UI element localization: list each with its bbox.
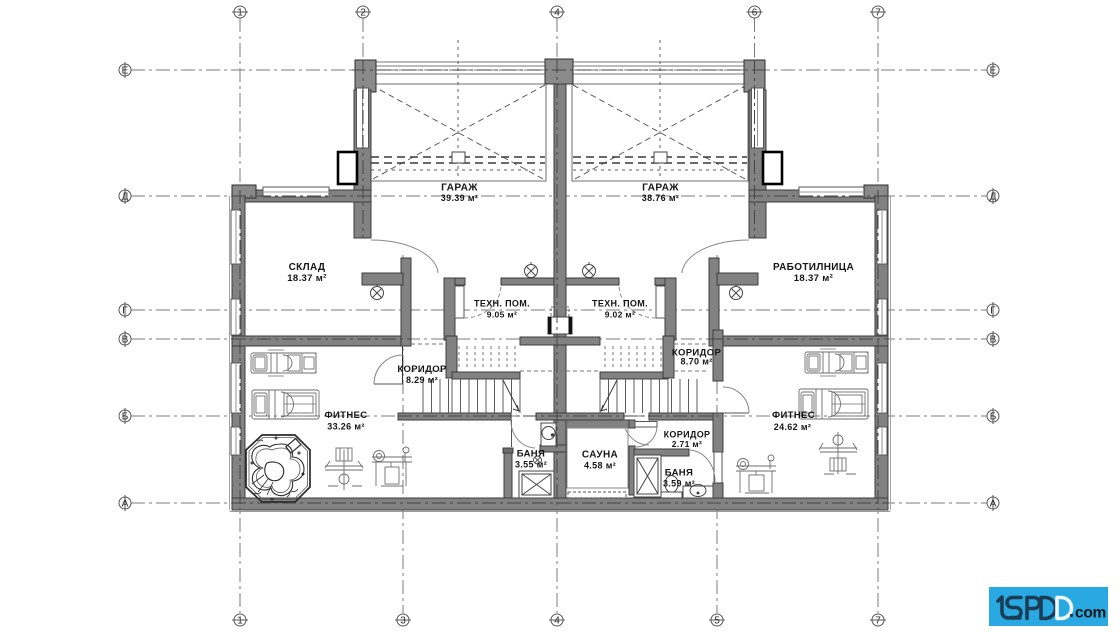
svg-text:18.37 м²: 18.37 м² — [794, 273, 833, 284]
svg-text:ГАРАЖ: ГАРАЖ — [642, 183, 679, 194]
svg-text:8.70 м²: 8.70 м² — [680, 357, 712, 367]
svg-text:3.55 м²: 3.55 м² — [515, 460, 547, 470]
svg-text:9.05 м²: 9.05 м² — [487, 310, 517, 320]
svg-text:А: А — [990, 499, 997, 510]
svg-text:ТЕХН. ПОМ.: ТЕХН. ПОМ. — [474, 299, 530, 309]
svg-text:КОРИДОР: КОРИДОР — [397, 364, 447, 375]
svg-text:САУНА: САУНА — [582, 450, 618, 461]
svg-text:Е: Е — [990, 66, 997, 77]
svg-text:4.58 м²: 4.58 м² — [584, 461, 616, 471]
svg-text:Е: Е — [122, 66, 129, 77]
svg-text:6: 6 — [752, 8, 758, 19]
svg-text:Д: Д — [990, 192, 997, 203]
svg-text:8.29 м²: 8.29 м² — [406, 375, 438, 385]
svg-text:БАНЯ: БАНЯ — [517, 449, 545, 460]
svg-text:7: 7 — [875, 616, 881, 627]
svg-text:24.62 м²: 24.62 м² — [774, 422, 811, 432]
svg-text:БАНЯ: БАНЯ — [665, 468, 693, 479]
svg-text:38.76 м²: 38.76 м² — [642, 193, 679, 203]
svg-text:В: В — [990, 335, 997, 346]
svg-text:Г: Г — [122, 306, 128, 317]
svg-text:КОРИДОР: КОРИДОР — [664, 430, 711, 440]
svg-text:1: 1 — [237, 616, 243, 627]
svg-text:В: В — [122, 335, 129, 346]
svg-text:ТЕХН. ПОМ.: ТЕХН. ПОМ. — [592, 299, 648, 309]
svg-text:РАБОТИЛНИЦА: РАБОТИЛНИЦА — [773, 262, 854, 273]
svg-text:5: 5 — [714, 616, 720, 627]
svg-text:4: 4 — [554, 8, 560, 19]
svg-text:18.37 м²: 18.37 м² — [287, 273, 326, 284]
svg-text:com: com — [1075, 605, 1106, 622]
svg-text:Б: Б — [122, 412, 129, 423]
svg-text:Б: Б — [990, 412, 997, 423]
svg-text:ФИТНЕС: ФИТНЕС — [772, 410, 815, 421]
svg-text:Г: Г — [990, 306, 996, 317]
svg-text:1: 1 — [237, 8, 243, 19]
svg-text:4: 4 — [554, 616, 560, 627]
svg-text:39.39 м²: 39.39 м² — [441, 193, 478, 203]
svg-text:9.02 м²: 9.02 м² — [605, 310, 635, 320]
svg-text:СКЛАД: СКЛАД — [289, 262, 326, 273]
svg-text:2.71 м²: 2.71 м² — [672, 439, 702, 449]
svg-text:Д: Д — [122, 192, 129, 203]
svg-text:ФИТНЕС: ФИТНЕС — [325, 410, 368, 421]
svg-text:7: 7 — [875, 8, 881, 19]
svg-text:3: 3 — [400, 616, 406, 627]
svg-text:ГАРАЖ: ГАРАЖ — [441, 183, 478, 194]
svg-text:3.59 м²: 3.59 м² — [663, 479, 695, 489]
svg-text:33.26 м²: 33.26 м² — [327, 422, 364, 432]
svg-text:2: 2 — [360, 8, 366, 19]
svg-text:А: А — [122, 499, 129, 510]
